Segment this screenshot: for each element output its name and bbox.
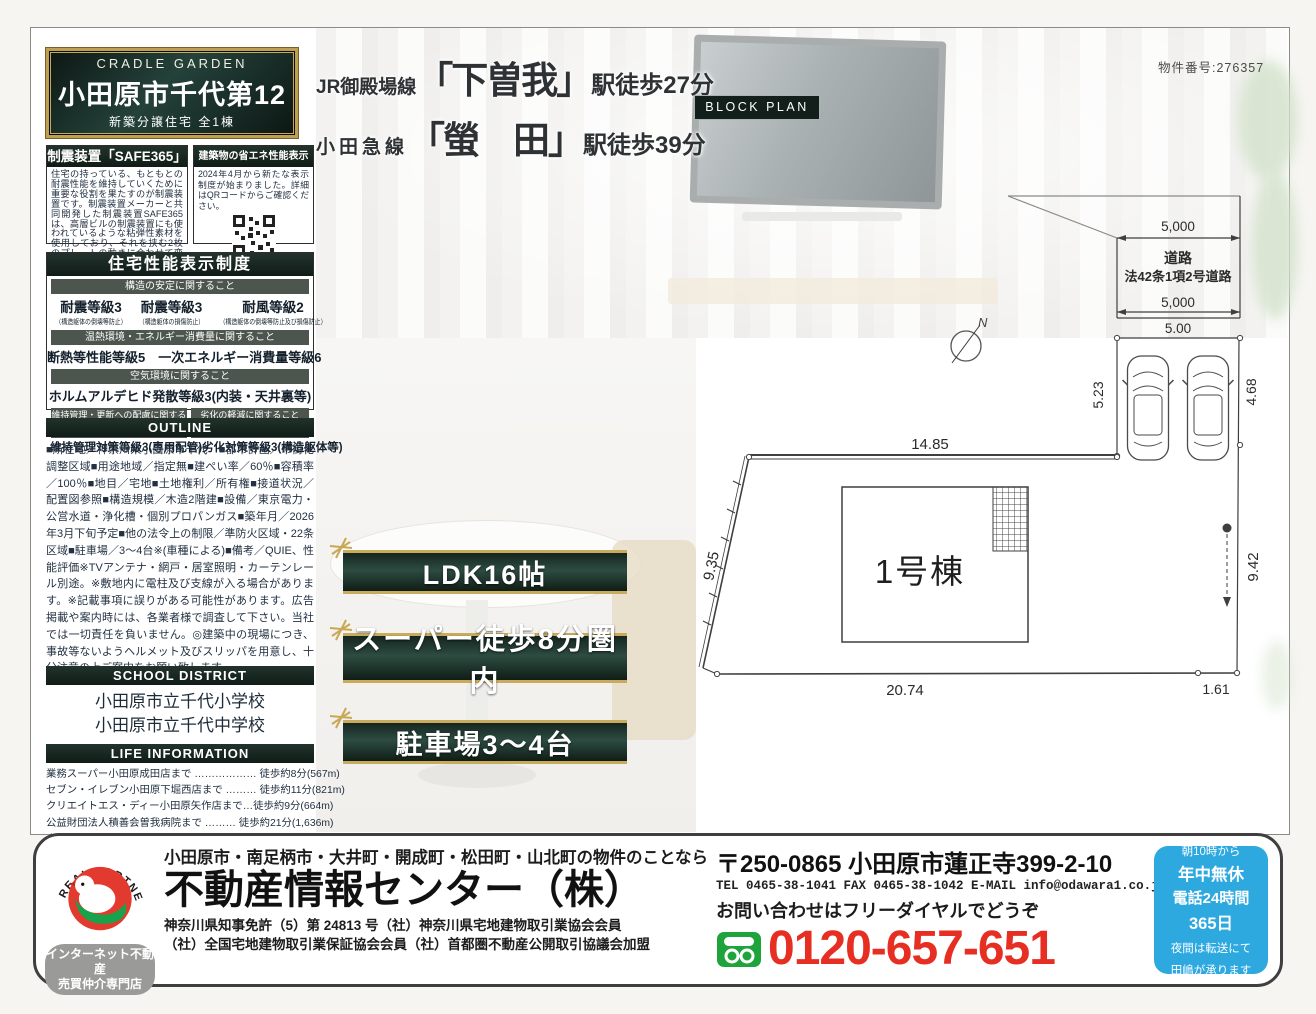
hours-line: 年中無休 bbox=[1154, 861, 1268, 885]
company-address: 〒250-0865 小田原市蓮正寺399-2-10 bbox=[716, 844, 1146, 879]
freedial-icon bbox=[716, 929, 762, 969]
phone-row: 0120-657-651 bbox=[716, 925, 1146, 973]
badge-line: インターネット不動産 bbox=[45, 947, 155, 977]
life-item: 公益財団法人積善会曽我病院まで ……… 徒歩約21分(1,636m) bbox=[46, 816, 316, 832]
contact-block: 〒250-0865 小田原市蓮正寺399-2-10 TEL 0465-38-10… bbox=[716, 836, 1146, 973]
life-header: LIFE INFORMATION bbox=[46, 744, 314, 763]
hours-line: 電話24時間 bbox=[1154, 887, 1268, 908]
life-item: クリエイトエス・ディー小田原矢作店まで…徒歩約9分(664m) bbox=[46, 799, 316, 815]
strip-thermal: 温熱環境・エネルギー消費量に関すること bbox=[51, 330, 309, 345]
railway-name: 小田急線 bbox=[316, 132, 408, 159]
thermal-grades: 断熱等性能等級5 一次エネルギー消費量等級6 bbox=[47, 347, 313, 366]
grade-note: （構造躯体の損傷防止） bbox=[139, 317, 204, 327]
logo-dove-head bbox=[75, 876, 94, 895]
structure-grades: 耐震等級3 （構造躯体の倒壊等防止） 耐震等級3 （構造躯体の損傷防止） 耐風等… bbox=[47, 295, 313, 328]
logo-block: REAL PARTNER インターネット不動産 売買仲介専門店 bbox=[36, 836, 164, 995]
tel-fax-line: TEL 0465-38-1041 FAX 0465-38-1042 E-MAIL… bbox=[716, 879, 1146, 893]
property-number: 物件番号:276357 bbox=[1158, 57, 1264, 76]
grade-note: （構造躯体の倒壊等防止及び損傷防止） bbox=[219, 317, 326, 327]
license-line: （社）全国宅地建物取引業保証協会会員（社）首都圏不動産公開取引協議会加盟 bbox=[164, 935, 716, 954]
shelf-photo bbox=[668, 278, 998, 304]
banner-ldk: LDK16帖 bbox=[343, 550, 627, 594]
hours-line: 朝10時から bbox=[1154, 843, 1268, 859]
project-plaque: CRADLE GARDEN 小田原市千代第12 新築分譲住宅 全1棟 bbox=[46, 48, 298, 138]
school-list: 小田原市立千代小学校 小田原市立千代中学校 bbox=[46, 690, 314, 738]
performance-box: 住宅性能表示制度 構造の安定に関すること 耐震等級3 （構造躯体の倒壊等防止） … bbox=[46, 252, 314, 410]
life-item: セブン・イレブン小田原下堀西店まで ……… 徒歩約11分(821m) bbox=[46, 783, 316, 799]
project-title: 小田原市千代第12 bbox=[58, 73, 286, 112]
strip-structure: 構造の安定に関すること bbox=[51, 279, 309, 294]
inquiry-line: お問い合わせはフリーダイヤルでどうぞ bbox=[716, 897, 1146, 923]
outline-header: OUTLINE bbox=[46, 418, 314, 437]
banner-parking: 駐車場3〜4台 bbox=[343, 720, 627, 764]
energy-label-box: 建築物の省エネ性能表示制度 2024年4月から新たな表示制度が始まりました。詳細… bbox=[193, 145, 314, 244]
energy-body: 2024年4月から新たな表示制度が始まりました。詳細はQRコードからご確認くださ… bbox=[194, 167, 313, 213]
grade-wind: 耐風等級2 （構造躯体の倒壊等防止及び損傷防止） bbox=[210, 296, 336, 327]
plant-photo bbox=[1238, 60, 1298, 180]
seismic-title: 制震装置「SAFE365」 bbox=[47, 146, 187, 167]
company-name: 不動産情報センター（株） bbox=[164, 868, 716, 912]
performance-title: 住宅性能表示制度 bbox=[47, 253, 313, 276]
access-line-1: JR御殿場線 「下曽我」 駅徒歩27分 bbox=[316, 50, 696, 104]
project-subtitle: 新築分譲住宅 全1棟 bbox=[109, 113, 235, 130]
hours-line: 田嶋が承ります bbox=[1154, 962, 1268, 978]
school-item: 小田原市立千代小学校 bbox=[46, 690, 314, 714]
brand-name: CRADLE GARDEN bbox=[97, 56, 248, 71]
service-area-line: 小田原市・南足柄市・大井町・開成町・松田町・山北町の物件のことなら bbox=[164, 844, 716, 868]
access-line-2: 小田急線 「螢 田」 駅徒歩39分 bbox=[316, 110, 696, 164]
real-partner-logo: REAL PARTNER bbox=[52, 841, 148, 937]
grade-quake-1: 耐震等級3 （構造躯体の倒壊等防止） bbox=[49, 296, 133, 327]
freedial-number: 0120-657-651 bbox=[768, 925, 1055, 973]
school-item: 小田原市立千代中学校 bbox=[46, 714, 314, 738]
station-access: JR御殿場線 「下曽我」 駅徒歩27分 小田急線 「螢 田」 駅徒歩39分 bbox=[316, 50, 696, 164]
school-header: SCHOOL DISTRICT bbox=[46, 666, 314, 685]
life-item: 業務スーパー小田原成田店まで ……………… 徒歩約8分(567m) bbox=[46, 767, 316, 783]
air-grade: ホルムアルデヒド発散等級3(内装・天井裏等) bbox=[47, 386, 313, 405]
tv-screen bbox=[697, 42, 939, 203]
license-line: 神奈川県知事免許（5）第 24813 号（社）神奈川県宅地建物取引業協会会員 bbox=[164, 916, 716, 935]
seismic-device-box: 制震装置「SAFE365」 住宅の持っている、もともとの耐震性能を維持していくた… bbox=[46, 145, 188, 244]
company-block: 小田原市・南足柄市・大井町・開成町・松田町・山北町の物件のことなら 不動産情報セ… bbox=[164, 836, 716, 954]
hours-line: 365日 bbox=[1154, 910, 1268, 934]
table-base bbox=[418, 762, 536, 788]
tv-photo bbox=[690, 35, 947, 210]
company-footer: REAL PARTNER インターネット不動産 売買仲介専門店 小田原市・南足柄… bbox=[33, 833, 1283, 987]
plant-photo bbox=[1262, 640, 1292, 710]
internet-badge: インターネット不動産 売買仲介専門店 bbox=[45, 944, 155, 995]
railway-name: JR御殿場線 bbox=[316, 72, 416, 99]
grade-label: 耐風等級2 bbox=[242, 300, 304, 315]
block-plan-label: BLOCK PLAN bbox=[694, 95, 820, 120]
plant-photo bbox=[1252, 170, 1298, 320]
station-name: 「下曽我」 bbox=[416, 50, 591, 104]
strip-air: 空気環境に関すること bbox=[51, 369, 309, 384]
banner-supermarket: スーパー徒歩8分圏内 bbox=[343, 633, 627, 683]
station-name: 「螢 田」 bbox=[408, 110, 583, 164]
grade-note: （構造躯体の倒壊等防止） bbox=[55, 317, 126, 327]
hours-line: 夜間は転送にて bbox=[1154, 940, 1268, 956]
grade-label: 耐震等級3 bbox=[141, 300, 203, 315]
logo-dove-eye bbox=[81, 883, 84, 886]
business-hours-box: 朝10時から 年中無休 電話24時間 365日 夜間は転送にて 田嶋が承ります bbox=[1154, 846, 1268, 974]
grade-label: 耐震等級3 bbox=[60, 300, 122, 315]
tv-stand bbox=[742, 212, 902, 221]
grade-quake-2: 耐震等級3 （構造躯体の損傷防止） bbox=[133, 296, 210, 327]
energy-title: 建築物の省エネ性能表示制度 bbox=[194, 146, 313, 167]
walk-time: 駅徒歩39分 bbox=[583, 125, 706, 160]
outline-body: ■所在地／神奈川県小田原市千代 ■都市計画／市街化調整区域■用途地域／指定無■建… bbox=[46, 442, 314, 677]
badge-line: 売買仲介専門店 bbox=[45, 977, 155, 992]
